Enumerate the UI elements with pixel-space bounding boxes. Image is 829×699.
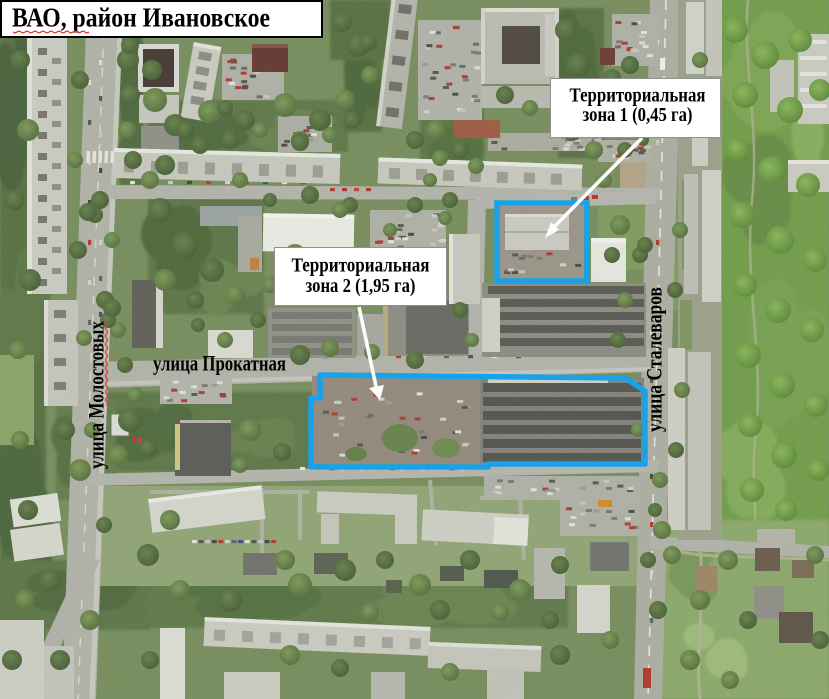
svg-text:ВАО, район Ивановское: ВАО, район Ивановское bbox=[12, 3, 270, 33]
svg-text:зона 1 (0,45 га): зона 1 (0,45 га) bbox=[583, 104, 693, 126]
svg-text:улица Сталеваров: улица Сталеваров bbox=[642, 287, 667, 432]
svg-text:зона 2 (1,95 га): зона 2 (1,95 га) bbox=[306, 275, 416, 297]
svg-text:Территориальная: Территориальная bbox=[292, 255, 430, 277]
svg-text:улица Молостовых: улица Молостовых bbox=[84, 321, 109, 469]
svg-text:улица Прокатная: улица Прокатная bbox=[153, 351, 286, 376]
